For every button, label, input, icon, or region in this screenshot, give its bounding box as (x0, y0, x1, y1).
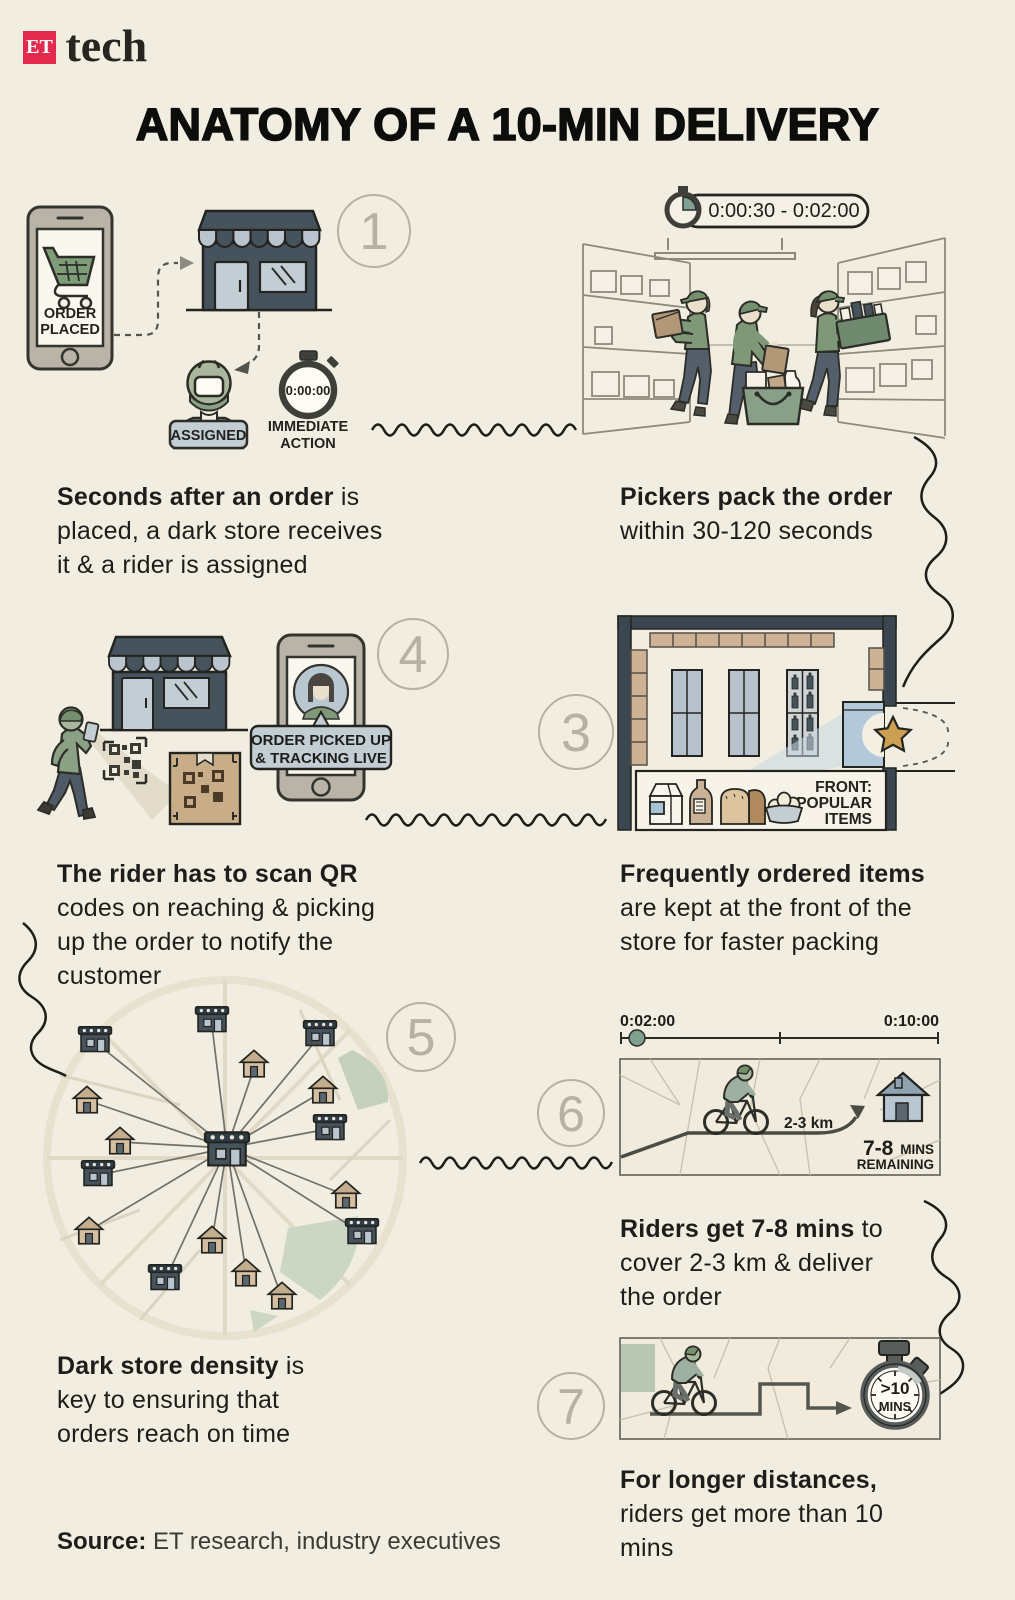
svg-text:MINS: MINS (879, 1399, 912, 1414)
svg-text:2-3 km: 2-3 km (784, 1115, 833, 1132)
svg-text:PLACED: PLACED (40, 322, 100, 338)
svg-text:ORDER PICKED UP: ORDER PICKED UP (251, 732, 391, 749)
svg-text:5: 5 (407, 1009, 436, 1067)
svg-text:3: 3 (561, 703, 591, 763)
svg-text:MINS: MINS (900, 1142, 934, 1157)
svg-text:ITEMS: ITEMS (825, 811, 872, 828)
svg-text:7: 7 (557, 1379, 585, 1435)
svg-text:>10: >10 (881, 1379, 910, 1398)
svg-text:0:00:00: 0:00:00 (286, 383, 331, 398)
svg-text:0:02:00: 0:02:00 (620, 1013, 675, 1030)
svg-text:0:00:30 - 0:02:00: 0:00:30 - 0:02:00 (708, 200, 859, 222)
svg-text:4: 4 (399, 626, 428, 684)
svg-text:REMAINING: REMAINING (857, 1157, 934, 1172)
svg-text:0:10:00: 0:10:00 (884, 1013, 939, 1030)
svg-text:6: 6 (557, 1086, 585, 1142)
svg-text:ORDER: ORDER (44, 306, 97, 322)
svg-text:ASSIGNED: ASSIGNED (171, 428, 247, 444)
svg-text:1: 1 (360, 203, 389, 261)
svg-text:& TRACKING LIVE: & TRACKING LIVE (255, 750, 387, 767)
svg-text:IMMEDIATE: IMMEDIATE (268, 419, 349, 435)
svg-text:ACTION: ACTION (280, 436, 336, 452)
svg-text:FRONT:: FRONT: (815, 779, 872, 796)
svg-text:POPULAR: POPULAR (796, 795, 872, 812)
